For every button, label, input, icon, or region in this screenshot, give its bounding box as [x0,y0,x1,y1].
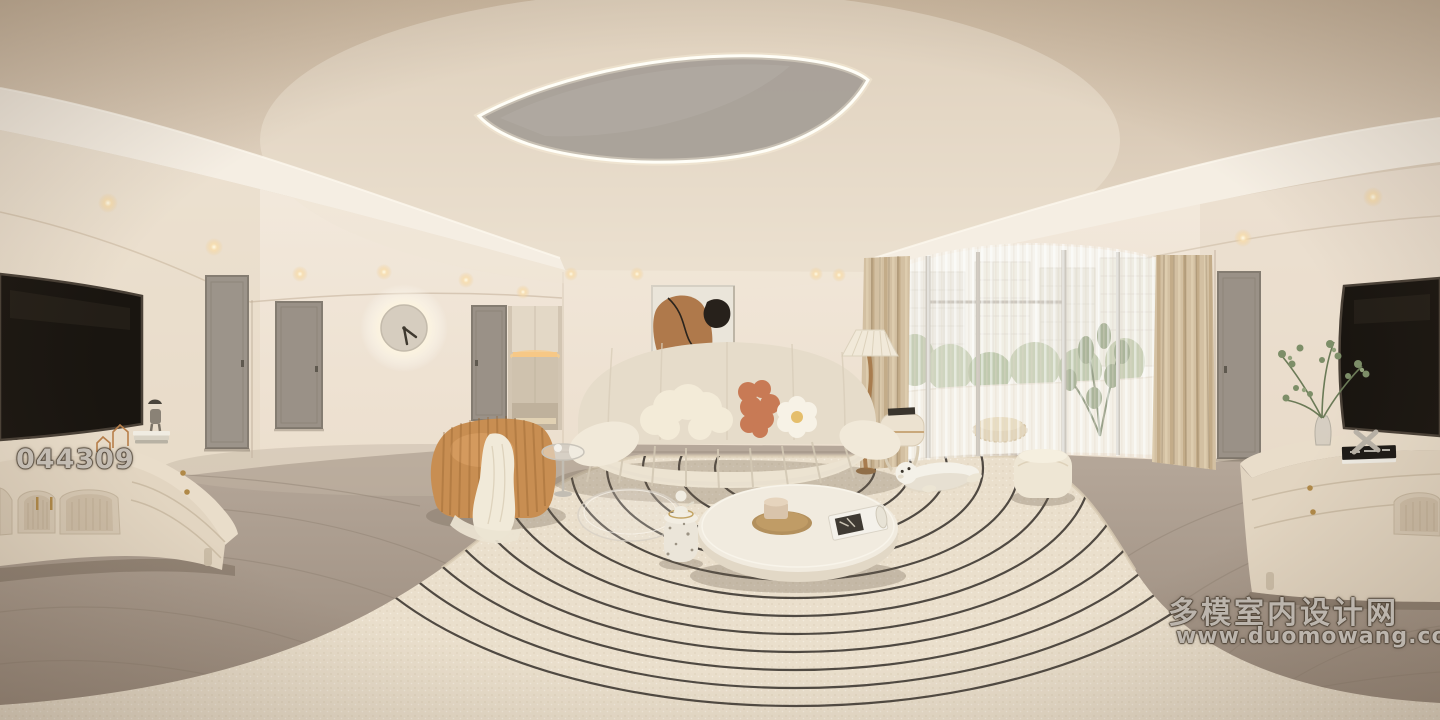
panorama-image: 044309 多模室内设计网 www.duomowang.com [0,0,1440,720]
site-watermark-url: www.duomowang.com [1176,624,1440,649]
photo-id-watermark: 044309 [16,444,135,475]
